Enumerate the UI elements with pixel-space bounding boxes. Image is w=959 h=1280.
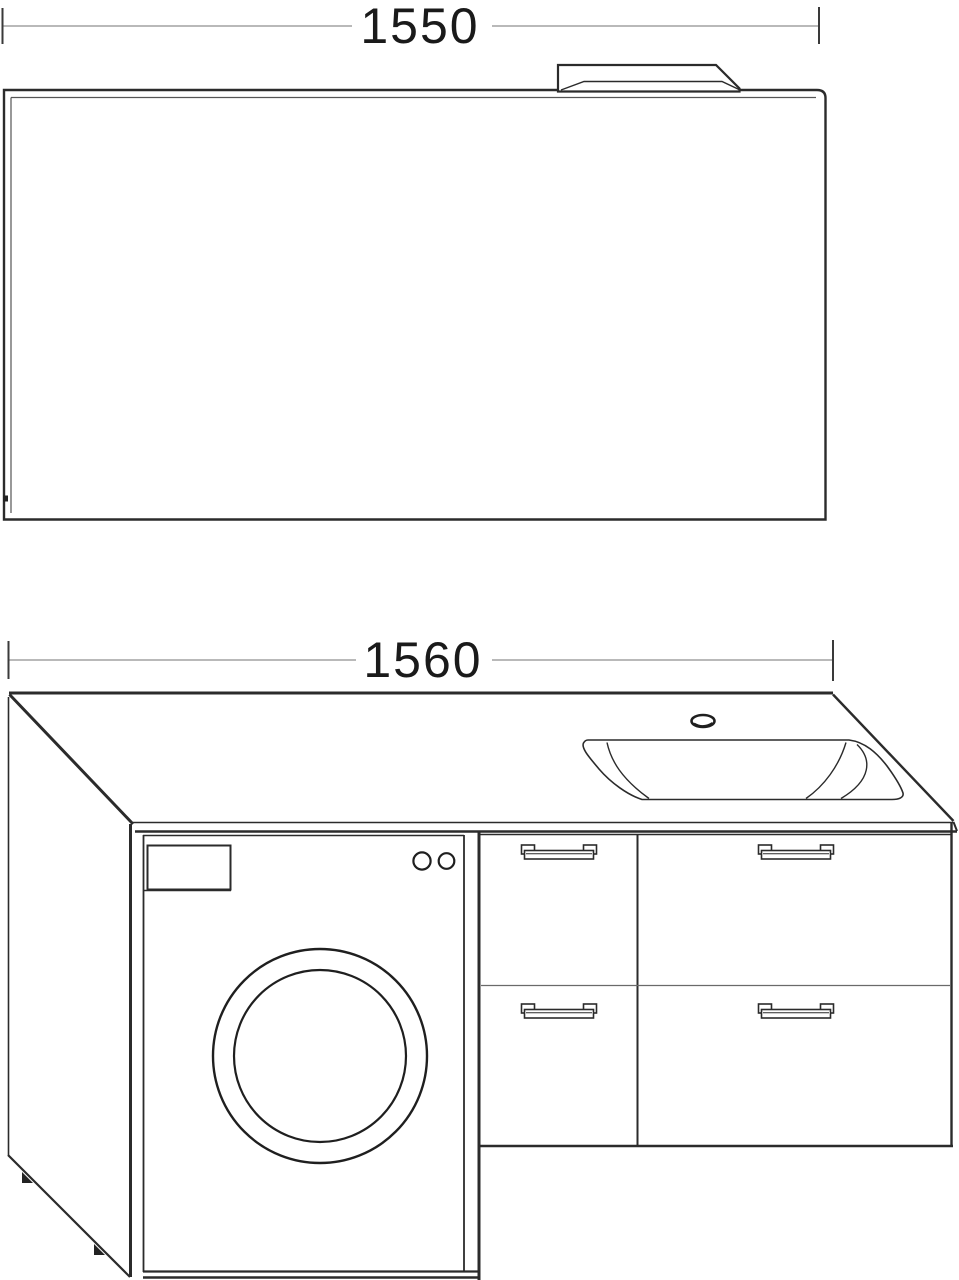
countertop-right-corner-edge xyxy=(954,822,958,831)
drawer-top-left xyxy=(522,845,597,859)
technical-drawing-canvas: 1550 1560 xyxy=(0,0,959,1280)
drawer-handle xyxy=(759,845,834,859)
sink-basin xyxy=(583,740,903,800)
mirror-edge-mark xyxy=(3,496,8,502)
light-fixture xyxy=(558,65,740,92)
basin-outline xyxy=(583,740,903,800)
drawer-handle xyxy=(522,845,597,859)
control-knobs xyxy=(413,852,454,869)
washing-machine xyxy=(143,835,479,1278)
mirror-frame xyxy=(4,90,826,520)
mirror-width-label: 1550 xyxy=(360,0,479,54)
mirror-width-dimension: 1550 xyxy=(2,0,819,54)
drawer-top-right xyxy=(759,845,834,859)
control-knob-icon xyxy=(413,852,430,869)
drawer-bottom-right xyxy=(759,1004,834,1018)
control-knob-icon xyxy=(439,853,455,869)
washing-machine-door xyxy=(213,949,427,1163)
vanity-width-label: 1560 xyxy=(363,632,482,688)
faucet-hole-icon xyxy=(692,715,715,727)
light-fixture-body xyxy=(558,65,740,92)
vanity-width-dimension: 1560 xyxy=(8,632,833,688)
detergent-drawer xyxy=(143,846,231,891)
drawer-unit xyxy=(480,823,953,1146)
drawer-handle xyxy=(759,1004,834,1018)
countertop xyxy=(9,693,957,832)
door-window xyxy=(234,970,406,1142)
side-panel-bottom-edge xyxy=(8,1155,130,1277)
drawer-bottom-left xyxy=(522,1004,597,1018)
mirror xyxy=(3,90,826,520)
drawer-handle xyxy=(522,1004,597,1018)
